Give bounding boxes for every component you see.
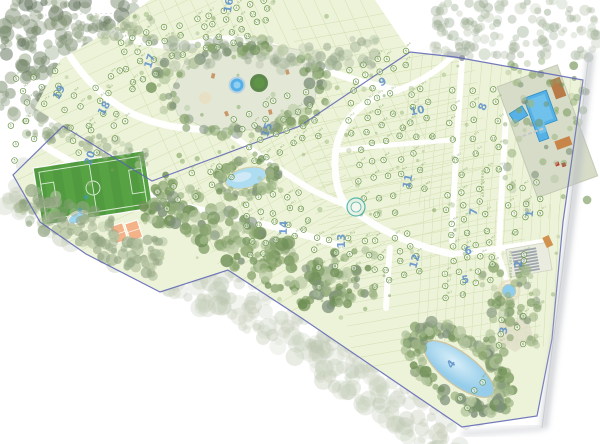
svg-text:23: 23 <box>414 135 419 140</box>
svg-text:18: 18 <box>393 210 398 215</box>
svg-text:15: 15 <box>496 145 501 150</box>
svg-text:7: 7 <box>317 266 319 270</box>
svg-text:13: 13 <box>391 193 396 198</box>
svg-text:10: 10 <box>449 233 454 238</box>
svg-text:12: 12 <box>377 196 382 201</box>
svg-text:12: 12 <box>491 136 496 141</box>
svg-text:40.4: 40.4 <box>28 114 34 119</box>
zone-label: 14 <box>278 220 291 235</box>
roundabout-symbol <box>347 198 365 216</box>
svg-text:1: 1 <box>10 124 12 128</box>
zone-label: 2 <box>513 260 525 267</box>
svg-text:18: 18 <box>274 238 279 243</box>
svg-text:10: 10 <box>418 168 423 173</box>
svg-text:17: 17 <box>374 212 379 217</box>
svg-text:8: 8 <box>489 278 491 282</box>
svg-text:5: 5 <box>13 159 15 163</box>
svg-text:10: 10 <box>513 230 518 235</box>
svg-text:17: 17 <box>484 168 489 173</box>
svg-text:4: 4 <box>313 248 315 252</box>
svg-text:10: 10 <box>461 293 465 297</box>
svg-text:14: 14 <box>473 151 478 156</box>
svg-text:1: 1 <box>444 272 446 276</box>
svg-text:2: 2 <box>458 270 460 274</box>
svg-text:10: 10 <box>391 111 396 116</box>
svg-text:3: 3 <box>477 269 479 273</box>
svg-text:9: 9 <box>444 296 446 300</box>
svg-text:1: 1 <box>316 236 318 240</box>
zone-label: 1 <box>524 210 537 218</box>
svg-text:7: 7 <box>479 254 481 258</box>
svg-text:13: 13 <box>349 131 354 136</box>
svg-text:5: 5 <box>335 251 337 255</box>
svg-text:10: 10 <box>299 207 304 212</box>
svg-text:3: 3 <box>475 243 477 247</box>
svg-text:3: 3 <box>15 142 17 146</box>
svg-text:4: 4 <box>491 262 493 266</box>
svg-text:11: 11 <box>465 231 470 236</box>
svg-text:10: 10 <box>451 137 456 142</box>
area-verde-label: AREA VERDE <box>509 250 513 278</box>
svg-text:21: 21 <box>248 253 253 258</box>
svg-text:16: 16 <box>250 239 255 244</box>
svg-text:2: 2 <box>328 238 330 242</box>
svg-text:22: 22 <box>397 134 402 139</box>
svg-text:8: 8 <box>491 255 493 259</box>
svg-text:5: 5 <box>444 284 446 288</box>
svg-text:24: 24 <box>430 134 435 139</box>
svg-text:6: 6 <box>349 252 351 256</box>
area-verde-label: AREA VERDE <box>481 169 485 197</box>
svg-text:12: 12 <box>426 100 431 105</box>
svg-text:17: 17 <box>408 120 413 125</box>
svg-text:18: 18 <box>497 167 502 172</box>
zone-label: 13 <box>336 234 348 249</box>
svg-text:18: 18 <box>424 116 429 121</box>
svg-text:10: 10 <box>317 285 321 289</box>
svg-text:1: 1 <box>452 244 454 248</box>
svg-text:8: 8 <box>334 264 336 268</box>
svg-text:5: 5 <box>452 259 454 263</box>
zone-label: 7 <box>468 208 481 216</box>
svg-text:14: 14 <box>364 130 369 135</box>
svg-text:20: 20 <box>301 227 306 232</box>
svg-text:4: 4 <box>488 241 490 245</box>
svg-text:11: 11 <box>244 224 249 229</box>
svg-text:19: 19 <box>292 234 297 239</box>
snowflake-icon: ✳ <box>77 206 84 215</box>
site-plan-sheet: 139.2218.7317.3421.6524.6642.1748.78939.… <box>0 0 600 444</box>
svg-text:13: 13 <box>453 158 458 163</box>
svg-text:12: 12 <box>485 229 490 234</box>
svg-text:12: 12 <box>256 223 261 228</box>
svg-text:22: 22 <box>261 251 266 256</box>
snowflake-icon: ✳ <box>83 193 90 202</box>
svg-text:2: 2 <box>25 119 27 123</box>
svg-text:11: 11 <box>470 137 475 142</box>
svg-text:21: 21 <box>384 139 389 144</box>
svg-text:13: 13 <box>272 219 277 224</box>
svg-text:20: 20 <box>370 141 375 146</box>
svg-text:28.8: 28.8 <box>406 42 412 48</box>
svg-text:15: 15 <box>379 123 384 128</box>
svg-text:16: 16 <box>459 173 464 178</box>
svg-text:9: 9 <box>353 266 355 270</box>
masterplan-drawing: 139.2218.7317.3421.6524.6642.1748.78939.… <box>0 0 600 444</box>
svg-text:15: 15 <box>422 186 427 191</box>
svg-text:19: 19 <box>359 148 364 153</box>
svg-text:7: 7 <box>475 281 477 285</box>
svg-text:4: 4 <box>33 137 35 141</box>
